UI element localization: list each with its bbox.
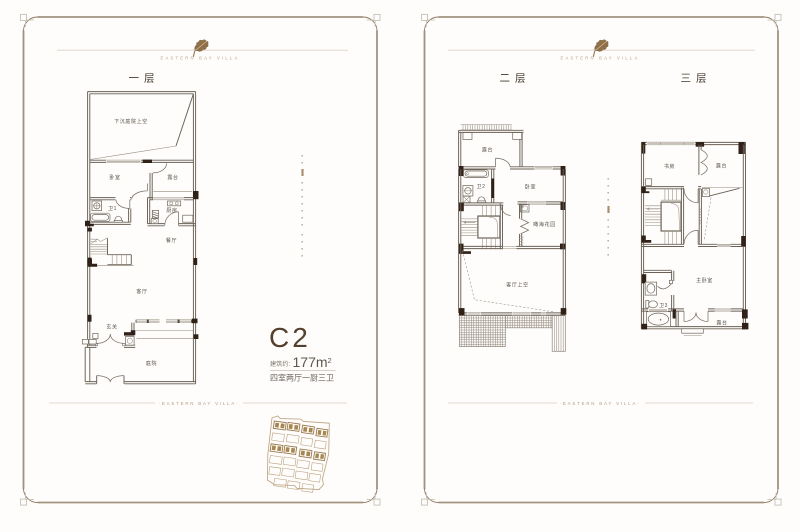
svg-text:卧室: 卧室 xyxy=(109,174,120,181)
svg-text:下沉庭院上空: 下沉庭院上空 xyxy=(114,118,148,125)
svg-text:书房: 书房 xyxy=(664,163,675,170)
svg-text:露台: 露台 xyxy=(482,147,493,154)
svg-text:三层: 三层 xyxy=(681,73,712,85)
svg-text:四室两厅一厨三卫: 四室两厅一厨三卫 xyxy=(270,372,334,382)
svg-text:露台: 露台 xyxy=(716,320,727,327)
svg-text:客厅: 客厅 xyxy=(136,288,147,295)
svg-text:·EASTERN BAY VILLA·: ·EASTERN BAY VILLA· xyxy=(560,401,641,406)
svg-text:177m2: 177m2 xyxy=(293,354,332,370)
svg-text:卫2: 卫2 xyxy=(477,184,486,190)
svg-text:卫3: 卫3 xyxy=(659,303,668,309)
svg-text:庭院: 庭院 xyxy=(146,360,157,367)
svg-text:瞰海花园: 瞰海花园 xyxy=(533,221,555,228)
svg-text:·EASTERN BAY VILLA·: ·EASTERN BAY VILLA· xyxy=(159,401,240,406)
svg-text:EASTERN BAY VILLA: EASTERN BAY VILLA xyxy=(561,55,640,60)
svg-text:露台: 露台 xyxy=(167,174,178,181)
svg-text:一层: 一层 xyxy=(129,73,160,85)
svg-text:露台: 露台 xyxy=(716,163,727,170)
svg-text:建筑约:: 建筑约: xyxy=(270,360,291,368)
svg-text:客厅上空: 客厅上空 xyxy=(506,282,528,289)
svg-text:EASTERN BAY VILLA: EASTERN BAY VILLA xyxy=(161,55,240,60)
svg-text:卧室: 卧室 xyxy=(525,184,536,191)
svg-text:玄关: 玄关 xyxy=(106,324,117,331)
svg-text:卫1: 卫1 xyxy=(108,206,117,212)
svg-text:C2: C2 xyxy=(269,322,311,353)
svg-text:二层: 二层 xyxy=(500,73,531,85)
svg-text:主卧室: 主卧室 xyxy=(696,277,713,284)
svg-text:餐厅: 餐厅 xyxy=(166,237,177,244)
